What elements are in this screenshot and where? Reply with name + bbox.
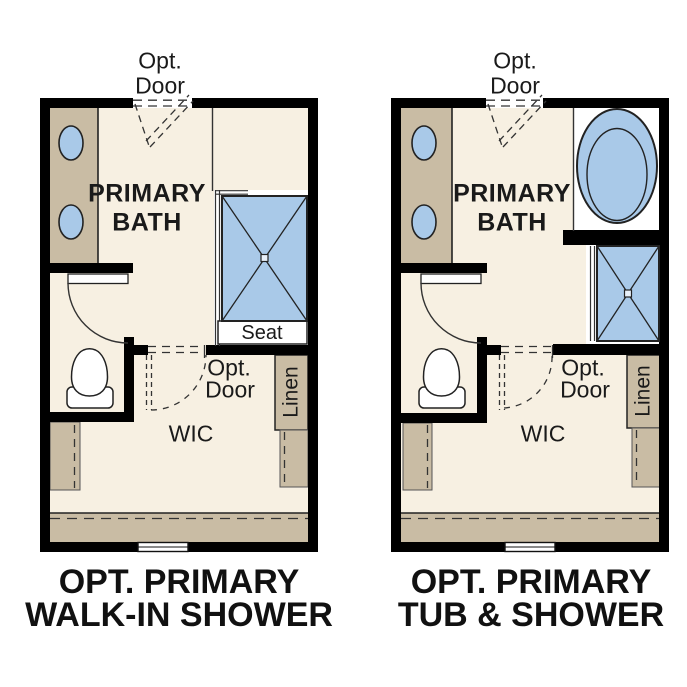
wic-label: WIC <box>521 423 566 446</box>
sink <box>59 126 83 160</box>
wic-label: WIC <box>169 423 214 446</box>
room-label: BATH <box>112 211 182 236</box>
room-label: BATH <box>477 211 547 236</box>
room-label: PRIMARY <box>88 182 206 207</box>
door-panel <box>421 274 481 284</box>
window <box>138 543 188 552</box>
shower-drain <box>261 255 268 262</box>
opt-door-label: Opt. <box>138 50 181 73</box>
bottom-soffit <box>401 513 659 542</box>
opt-door-label: Door <box>135 75 185 98</box>
opt-door-label: Opt. <box>493 50 536 73</box>
tub <box>577 109 657 223</box>
linen-label: Linen <box>633 365 654 416</box>
opt-door-label: Door <box>490 75 540 98</box>
sink <box>412 126 436 160</box>
floorplan-canvas: Opt. Door PRIMARY BATH Seat Opt. Door WI… <box>0 0 687 687</box>
sink <box>59 205 83 239</box>
window <box>505 543 555 552</box>
plan-title: OPT. PRIMARY <box>59 565 300 599</box>
room-label: PRIMARY <box>453 182 571 207</box>
shower-drain <box>625 290 632 297</box>
door-panel <box>68 274 128 284</box>
plan-title: OPT. PRIMARY <box>411 565 652 599</box>
opt-door-label: Door <box>205 379 255 402</box>
plan-title: WALK-IN SHOWER <box>25 598 333 632</box>
seat-label: Seat <box>241 323 282 343</box>
sink <box>412 205 436 239</box>
bottom-soffit <box>50 513 308 542</box>
plan-title: TUB & SHOWER <box>398 598 664 632</box>
closet-shelf <box>50 422 80 490</box>
linen-label: Linen <box>281 366 302 417</box>
opt-door-label: Door <box>560 379 610 402</box>
